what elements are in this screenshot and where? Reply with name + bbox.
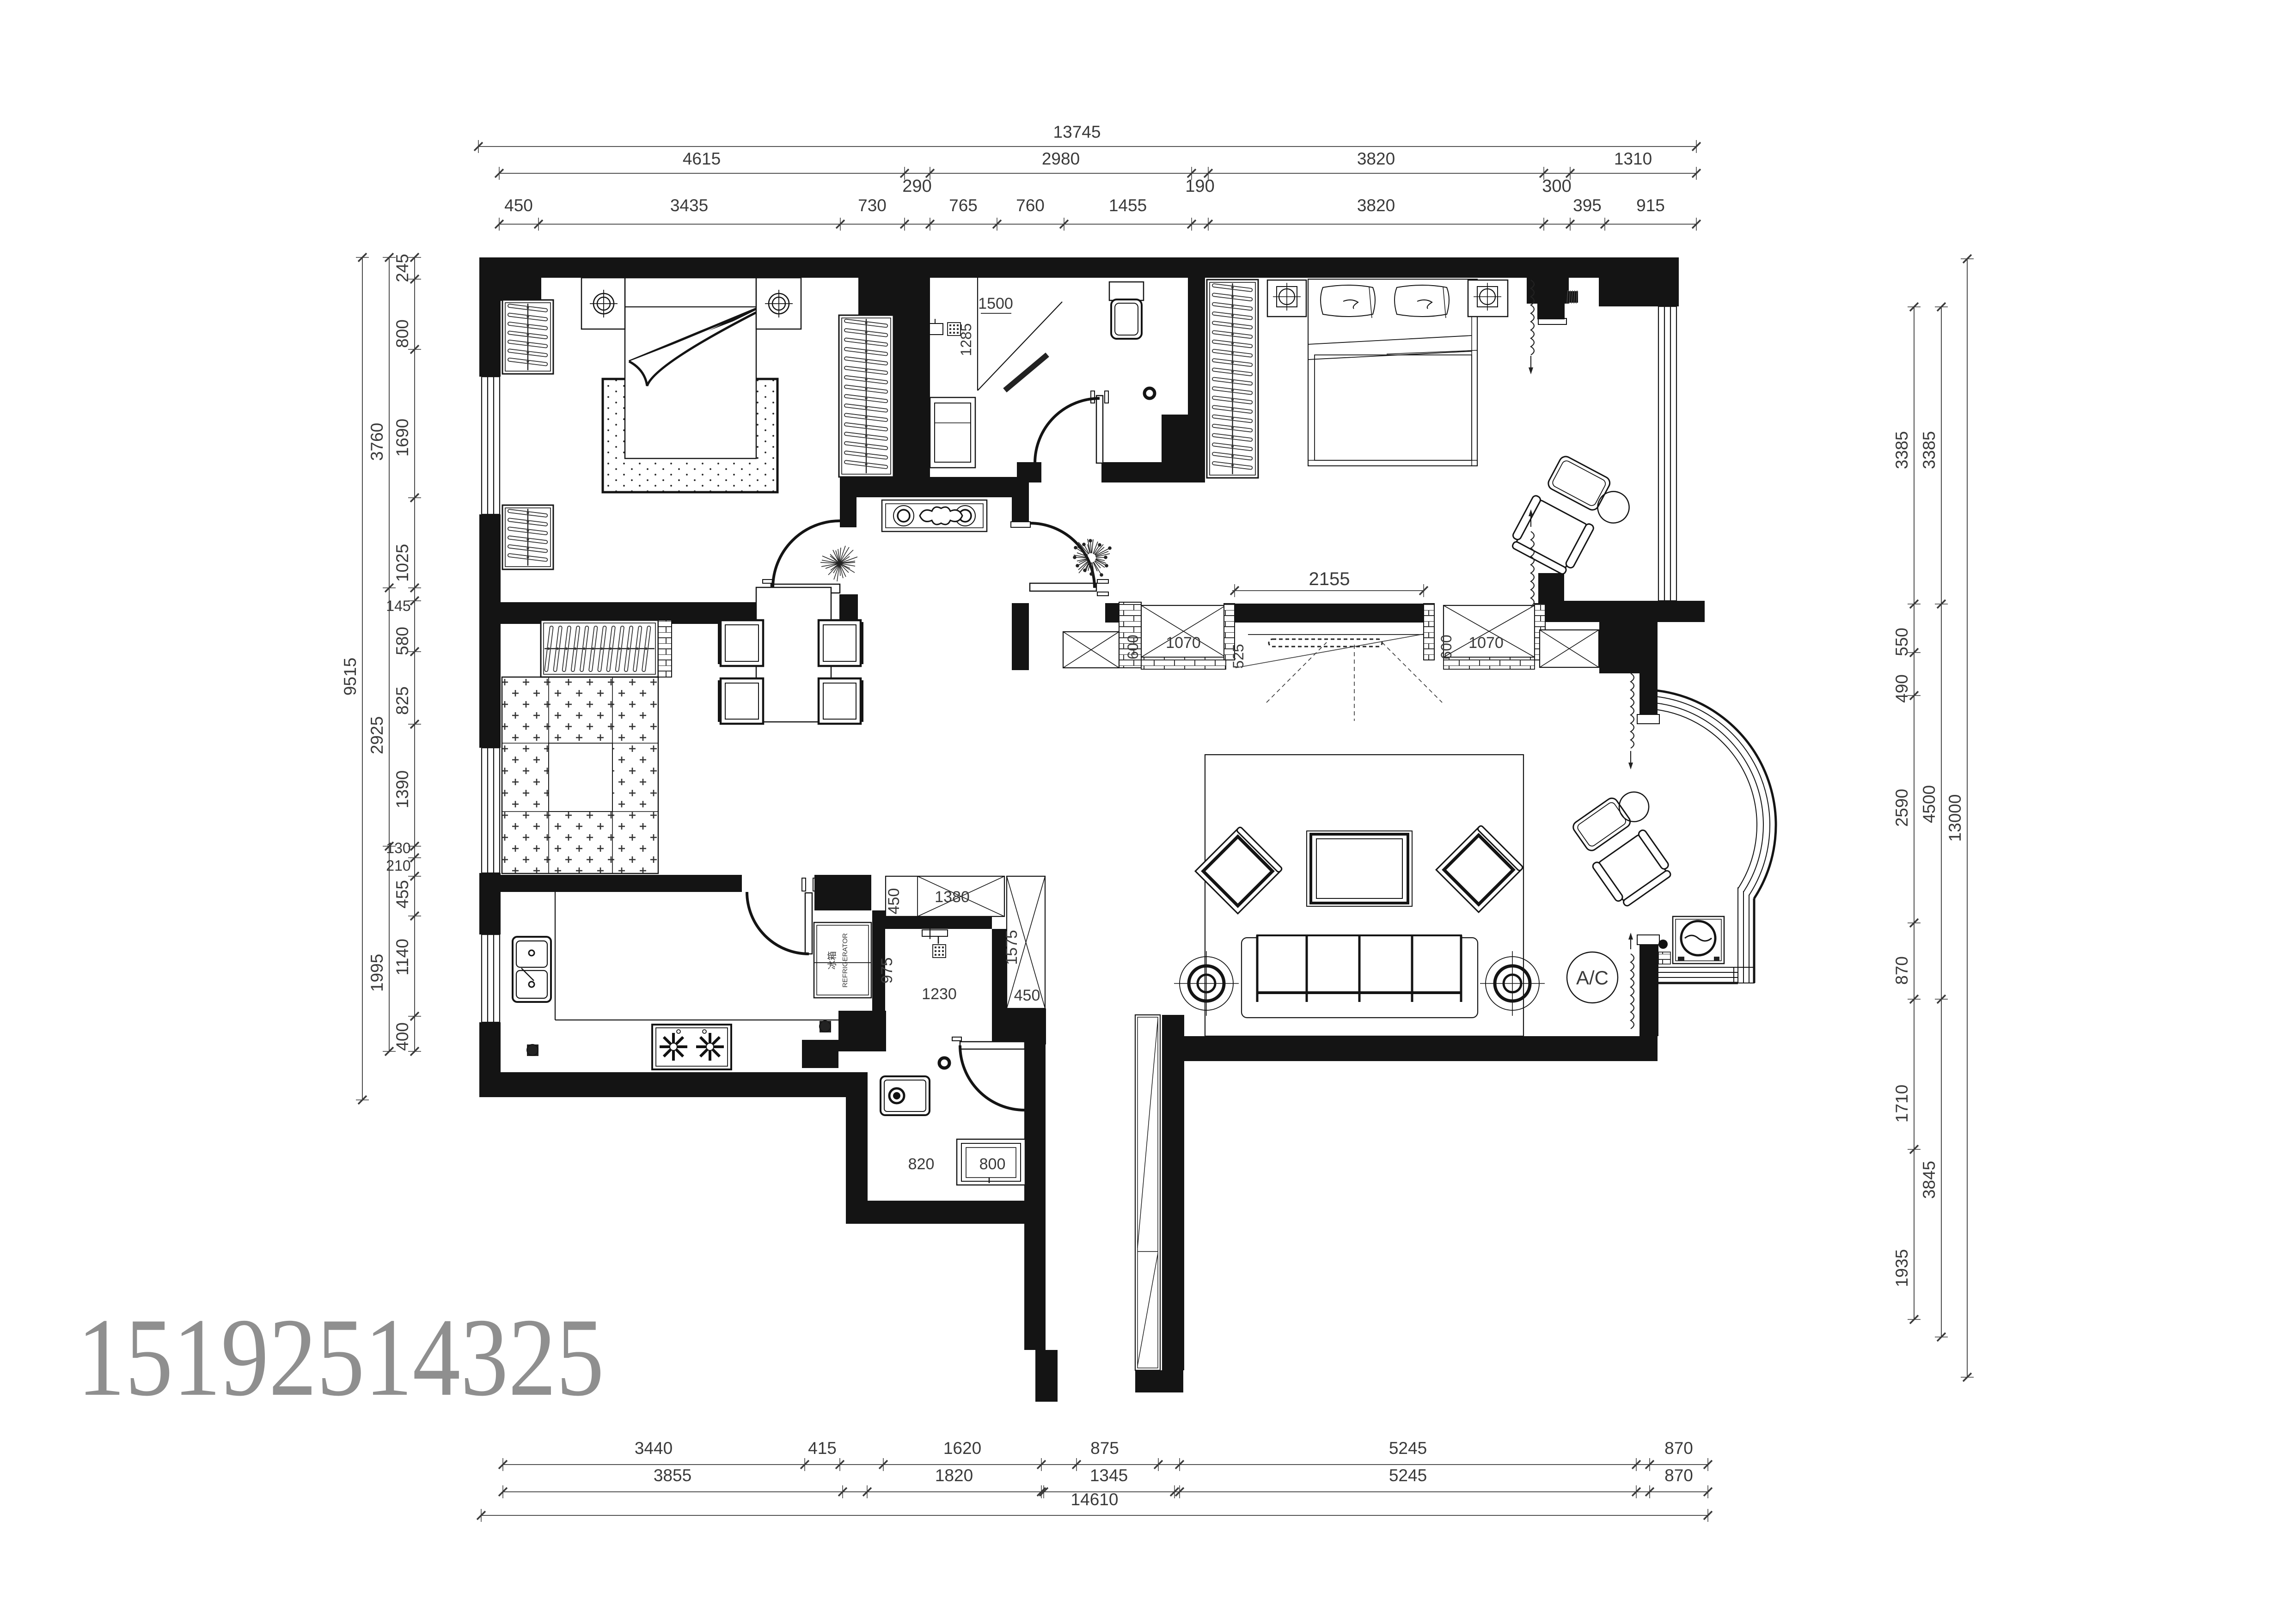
svg-text:580: 580 xyxy=(393,627,412,655)
svg-text:245: 245 xyxy=(393,254,412,282)
svg-text:1500: 1500 xyxy=(978,295,1013,312)
svg-text:490: 490 xyxy=(1892,674,1911,703)
svg-text:3820: 3820 xyxy=(1357,149,1395,168)
svg-text:1230: 1230 xyxy=(922,985,957,1003)
svg-text:870: 870 xyxy=(1892,956,1911,985)
svg-text:210: 210 xyxy=(386,857,410,874)
svg-text:870: 870 xyxy=(1664,1466,1693,1485)
svg-text:1690: 1690 xyxy=(393,419,412,457)
svg-text:550: 550 xyxy=(1892,628,1911,656)
svg-text:190: 190 xyxy=(1185,177,1214,196)
svg-text:14610: 14610 xyxy=(1071,1490,1119,1509)
svg-text:13000: 13000 xyxy=(1945,794,1964,842)
svg-text:1935: 1935 xyxy=(1892,1249,1911,1287)
svg-text:4615: 4615 xyxy=(683,149,721,168)
svg-text:800: 800 xyxy=(979,1155,1006,1173)
svg-text:450: 450 xyxy=(1014,987,1040,1004)
svg-text:2980: 2980 xyxy=(1042,149,1080,168)
svg-text:825: 825 xyxy=(393,686,412,715)
svg-text:820: 820 xyxy=(908,1155,935,1173)
svg-text:1070: 1070 xyxy=(1166,634,1201,652)
svg-text:A/C: A/C xyxy=(1576,967,1609,989)
svg-text:3820: 3820 xyxy=(1357,196,1395,215)
svg-text:765: 765 xyxy=(949,196,978,215)
svg-text:145: 145 xyxy=(386,598,410,614)
svg-text:3385: 3385 xyxy=(1920,431,1939,469)
svg-text:2590: 2590 xyxy=(1892,789,1911,827)
svg-text:1140: 1140 xyxy=(393,939,412,976)
svg-text:455: 455 xyxy=(393,880,412,909)
svg-text:1620: 1620 xyxy=(943,1439,981,1458)
svg-text:9515: 9515 xyxy=(341,658,360,696)
svg-text:730: 730 xyxy=(858,196,887,215)
svg-text:395: 395 xyxy=(1573,196,1602,215)
svg-text:875: 875 xyxy=(1090,1439,1119,1458)
svg-text:3855: 3855 xyxy=(654,1466,691,1485)
svg-text:3845: 3845 xyxy=(1920,1161,1939,1199)
svg-text:290: 290 xyxy=(902,177,931,196)
svg-text:2925: 2925 xyxy=(367,716,386,754)
svg-text:800: 800 xyxy=(393,319,412,348)
svg-text:600: 600 xyxy=(1438,635,1455,659)
svg-text:4500: 4500 xyxy=(1920,785,1939,823)
svg-text:5245: 5245 xyxy=(1389,1466,1427,1485)
svg-text:13745: 13745 xyxy=(1053,122,1101,141)
svg-text:3385: 3385 xyxy=(1892,431,1911,469)
svg-text:1995: 1995 xyxy=(367,954,386,992)
svg-text:1710: 1710 xyxy=(1892,1085,1911,1123)
svg-text:130: 130 xyxy=(386,840,410,856)
svg-text:870: 870 xyxy=(1664,1439,1693,1458)
svg-text:5245: 5245 xyxy=(1389,1439,1427,1458)
svg-text:1380: 1380 xyxy=(935,888,970,906)
svg-text:冰箱: 冰箱 xyxy=(827,951,838,970)
svg-text:300: 300 xyxy=(1542,177,1571,196)
svg-text:3760: 3760 xyxy=(367,423,386,461)
svg-text:3435: 3435 xyxy=(670,196,708,215)
svg-text:525: 525 xyxy=(1230,644,1247,668)
svg-text:1070: 1070 xyxy=(1468,634,1504,652)
svg-text:1390: 1390 xyxy=(393,770,412,808)
svg-text:2155: 2155 xyxy=(1309,569,1350,589)
svg-text:450: 450 xyxy=(885,888,903,915)
svg-text:600: 600 xyxy=(1125,635,1141,659)
svg-text:1025: 1025 xyxy=(393,544,412,582)
svg-text:400: 400 xyxy=(393,1022,412,1051)
svg-text:1455: 1455 xyxy=(1109,196,1147,215)
svg-text:1310: 1310 xyxy=(1614,149,1652,168)
svg-text:1575: 1575 xyxy=(1003,930,1021,965)
svg-text:1285: 1285 xyxy=(958,323,974,356)
svg-text:760: 760 xyxy=(1016,196,1045,215)
svg-text:450: 450 xyxy=(504,196,533,215)
svg-text:975: 975 xyxy=(878,958,896,984)
svg-text:415: 415 xyxy=(808,1439,837,1458)
svg-text:1345: 1345 xyxy=(1090,1466,1128,1485)
svg-text:3440: 3440 xyxy=(635,1439,673,1458)
svg-text:15192514325: 15192514325 xyxy=(77,1295,604,1419)
svg-text:915: 915 xyxy=(1636,196,1665,215)
svg-text:1820: 1820 xyxy=(935,1466,973,1485)
svg-text:REFRIGERATOR: REFRIGERATOR xyxy=(841,933,849,988)
